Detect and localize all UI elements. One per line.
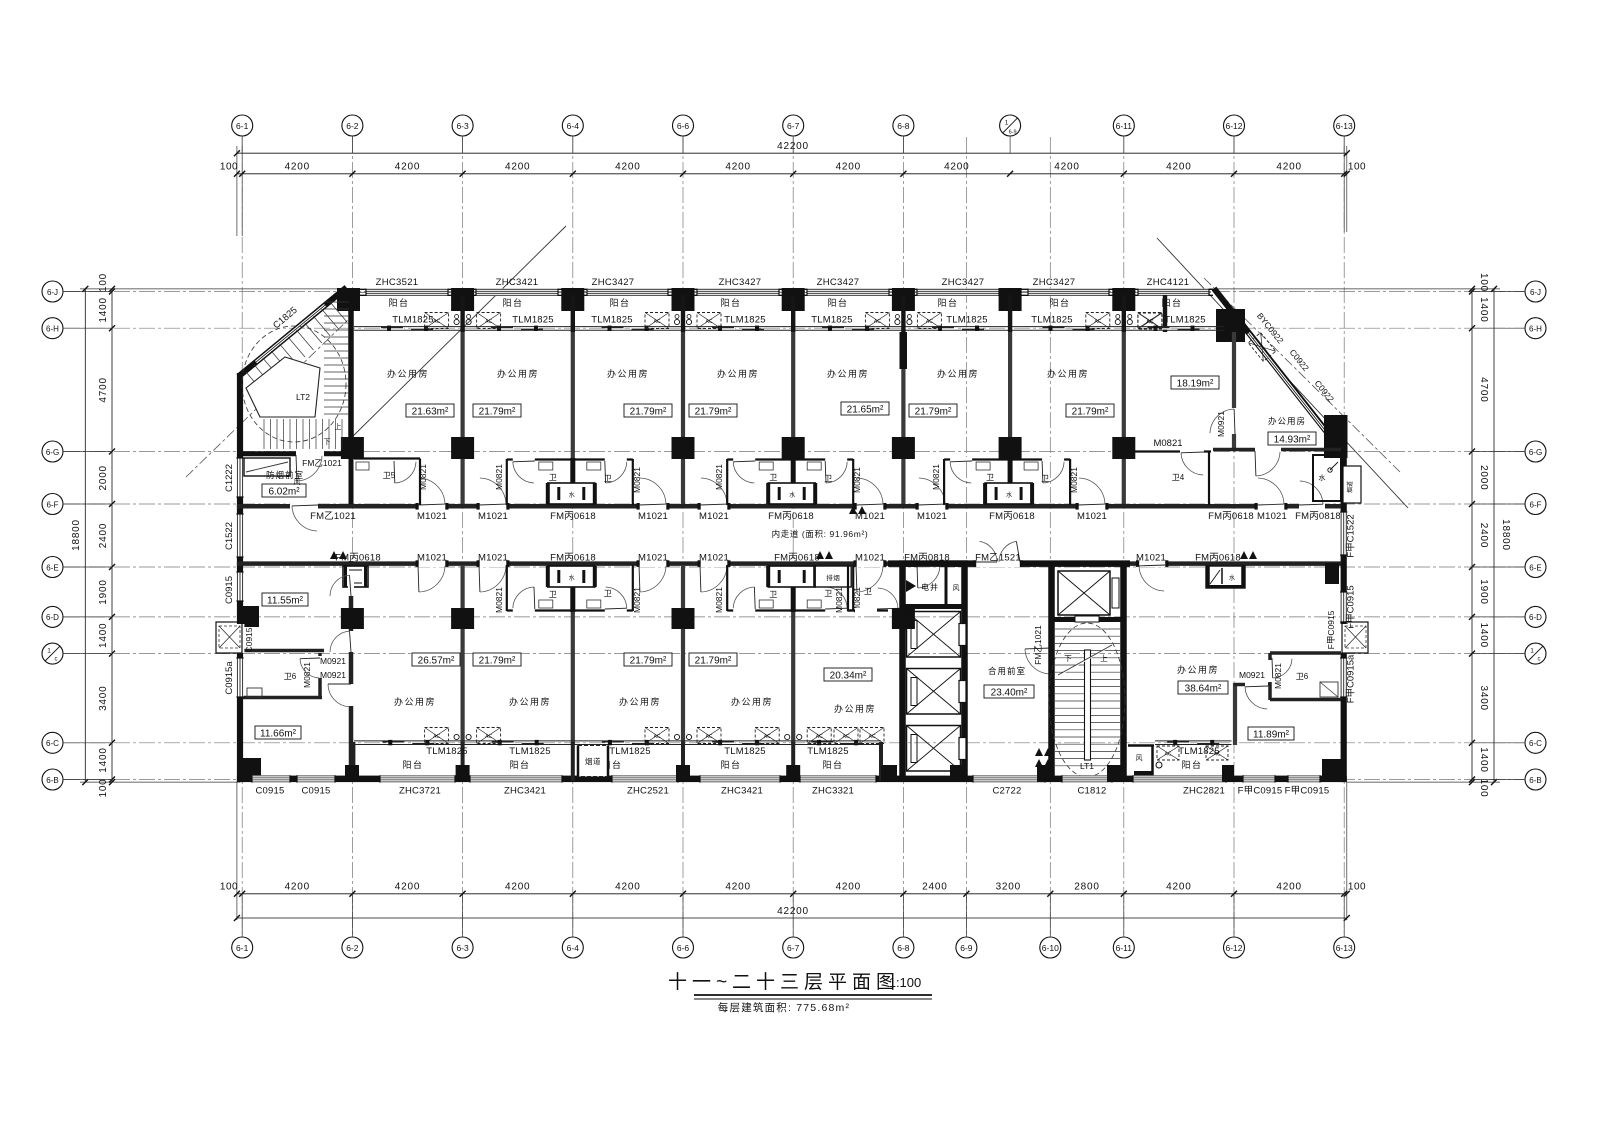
svg-text:阳台: 阳台 [937,297,958,308]
svg-text:阳台: 阳台 [388,297,409,308]
svg-text:6-H: 6-H [46,325,59,334]
svg-text:F甲C0915a: F甲C0915a [1346,654,1357,703]
svg-text:FM丙0618: FM丙0618 [550,553,596,564]
svg-text:上: 上 [1100,654,1108,663]
svg-text:C0915: C0915 [256,786,285,797]
svg-text:C0915: C0915 [224,576,235,604]
svg-text:AC: AC [764,734,771,740]
svg-text:1400: 1400 [98,747,109,772]
svg-text:ZHC3427: ZHC3427 [719,277,762,288]
svg-text:ZHC2821: ZHC2821 [1183,786,1225,797]
svg-text:AC: AC [926,319,933,325]
svg-text:1400: 1400 [1478,623,1489,648]
svg-text:6-7: 6-7 [787,943,800,953]
svg-text:6-J: 6-J [1530,288,1541,297]
svg-text:ZHC3421: ZHC3421 [721,786,763,797]
svg-text:21.79m²: 21.79m² [479,407,516,418]
svg-text:4200: 4200 [505,882,530,893]
svg-text:14.93m²: 14.93m² [1274,435,1311,446]
svg-text:办公用房: 办公用房 [1047,368,1089,379]
svg-text:办公用房: 办公用房 [717,368,759,379]
svg-text:卫: 卫 [986,473,994,482]
svg-text:办公用房: 办公用房 [1268,416,1306,426]
svg-text:6-1: 6-1 [236,121,249,131]
svg-text:M0921: M0921 [1239,670,1265,680]
svg-text:C2722: C2722 [993,786,1022,797]
svg-text:6.02m²: 6.02m² [268,487,300,498]
svg-text:卫: 卫 [549,590,557,599]
svg-text:6-6: 6-6 [677,121,690,131]
svg-text:AC: AC [706,319,713,325]
svg-text:办公用房: 办公用房 [509,696,551,707]
svg-text:办公用房: 办公用房 [619,696,661,707]
svg-text:6-8: 6-8 [897,943,910,953]
svg-text:TLM1825: TLM1825 [1031,315,1073,326]
svg-text:卫: 卫 [824,589,832,598]
svg-text:F甲C0915: F甲C0915 [1326,610,1336,649]
svg-text:21.79m²: 21.79m² [695,407,732,418]
svg-text:21.63m²: 21.63m² [412,407,449,418]
svg-text:卫: 卫 [824,474,832,483]
svg-text:6-9: 6-9 [960,943,973,953]
svg-text:4200: 4200 [615,162,640,173]
svg-text:M0821: M0821 [418,464,428,490]
svg-text:AC: AC [654,734,661,740]
svg-text:卫: 卫 [1041,474,1049,483]
svg-text:TLM1825: TLM1825 [591,315,633,326]
svg-text:阳台: 阳台 [822,759,843,770]
svg-text:3200: 3200 [996,882,1021,893]
svg-text:ZHC3427: ZHC3427 [817,277,860,288]
svg-text:LT1: LT1 [1080,761,1094,771]
svg-text:21.79m²: 21.79m² [630,407,667,418]
svg-text:阳台: 阳台 [502,297,523,308]
svg-text:M0821: M0821 [1273,663,1283,689]
svg-text:AC: AC [816,734,823,740]
svg-text:100: 100 [1478,273,1489,292]
svg-text:FM丙0618: FM丙0618 [774,553,820,564]
svg-text:阳台: 阳台 [509,759,530,770]
svg-text:4200: 4200 [395,162,420,173]
svg-text:M1021: M1021 [1077,511,1107,522]
svg-text:4200: 4200 [836,162,861,173]
svg-text:AC: AC [1094,319,1101,325]
svg-text:F甲C1522: F甲C1522 [1346,514,1357,557]
svg-text:1: 1 [1530,648,1534,655]
svg-text:6-B: 6-B [1529,776,1541,785]
svg-text:FM乙1521: FM乙1521 [975,553,1021,564]
svg-text:水: 水 [569,574,575,582]
svg-text:办公用房: 办公用房 [731,696,773,707]
svg-text:1400: 1400 [1478,747,1489,772]
svg-text:卫: 卫 [769,590,777,599]
svg-text:11.89m²: 11.89m² [1253,730,1290,741]
svg-text:6-12: 6-12 [1225,121,1242,131]
svg-text:M0821: M0821 [714,587,724,613]
svg-text:100: 100 [98,778,109,797]
svg-text:下: 下 [1064,654,1072,663]
svg-text:阳台: 阳台 [720,297,741,308]
svg-text:F甲C0915: F甲C0915 [1238,786,1283,797]
svg-text:6-13: 6-13 [1336,943,1353,953]
svg-text:6-F: 6-F [47,500,59,509]
svg-text:6-E: 6-E [46,563,58,572]
svg-text:ZHC2521: ZHC2521 [627,786,669,797]
svg-text:AC: AC [1147,320,1154,326]
svg-text:内走道 (面积: 91.96m²): 内走道 (面积: 91.96m²) [772,529,869,539]
svg-text:1400: 1400 [98,623,109,648]
svg-text:M0821: M0821 [494,464,504,490]
svg-text:21.79m²: 21.79m² [915,407,952,418]
svg-text:6-D: 6-D [46,613,59,622]
svg-text:C1222: C1222 [224,464,235,492]
svg-text:6-6: 6-6 [677,943,690,953]
svg-text:6-9: 6-9 [1009,130,1017,136]
svg-text:100: 100 [1478,778,1489,797]
svg-text:100: 100 [98,273,109,292]
svg-text:M0921: M0921 [1216,411,1226,437]
svg-text:TLM1825: TLM1825 [609,746,651,757]
svg-text:阳台: 阳台 [609,297,630,308]
svg-text:2400: 2400 [1478,523,1489,548]
svg-text:21.79m²: 21.79m² [630,656,667,667]
svg-text:C0915: C0915 [244,627,254,652]
svg-text:6-11: 6-11 [1116,943,1133,953]
svg-text:FM丙0618: FM丙0618 [989,511,1035,522]
svg-text:阳台: 阳台 [1161,297,1182,308]
svg-text:卫: 卫 [864,587,872,596]
svg-text:合用前室: 合用前室 [988,666,1026,676]
svg-text:M0821: M0821 [632,467,642,493]
svg-text:ZHC3427: ZHC3427 [1033,277,1076,288]
svg-text:4200: 4200 [505,162,530,173]
svg-text:FM丙0618: FM丙0618 [550,511,596,522]
svg-text:卫: 卫 [549,473,557,482]
svg-text:AC: AC [869,734,876,740]
svg-text:6-F: 6-F [1530,500,1542,509]
svg-text:100: 100 [220,882,238,893]
svg-text:6-11: 6-11 [1116,121,1133,131]
svg-text:卫5: 卫5 [383,471,396,480]
svg-text:4200: 4200 [1276,882,1301,893]
svg-text:6-H: 6-H [1529,325,1542,334]
svg-text:c: c [55,657,58,663]
svg-text:20.34m²: 20.34m² [830,671,867,682]
svg-text:风: 风 [953,584,960,592]
svg-text:LT2: LT2 [296,392,310,402]
svg-text:6-G: 6-G [46,448,59,457]
svg-text:100: 100 [220,162,238,173]
svg-text:M0821: M0821 [1069,467,1079,493]
svg-text:TLM1825: TLM1825 [1164,315,1206,326]
svg-text:阳台: 阳台 [1049,297,1070,308]
svg-text:6-C: 6-C [46,739,59,748]
svg-text:阳台: 阳台 [402,759,423,770]
svg-text:6-4: 6-4 [567,121,580,131]
svg-text:M0821: M0821 [714,464,724,490]
svg-text:M1021: M1021 [699,511,729,522]
svg-text:21.79m²: 21.79m² [1072,407,1109,418]
svg-text:4700: 4700 [1478,377,1489,402]
svg-text:办公用房: 办公用房 [387,368,429,379]
svg-text:6-12: 6-12 [1225,943,1242,953]
svg-text:4200: 4200 [1054,162,1079,173]
svg-text:M0821: M0821 [494,587,504,613]
svg-text:6-C: 6-C [1529,739,1542,748]
svg-text:18.19m²: 18.19m² [1177,379,1214,390]
svg-text:卫6: 卫6 [1296,672,1309,681]
svg-text:办公用房: 办公用房 [394,696,436,707]
svg-text:4200: 4200 [615,882,640,893]
svg-text:1: 1 [1005,120,1009,127]
svg-text:烟道: 烟道 [1346,481,1354,493]
svg-text:C0915a: C0915a [224,661,235,695]
svg-text:M0821: M0821 [852,467,862,493]
svg-text:办公用房: 办公用房 [1177,664,1219,675]
svg-text:水: 水 [1006,491,1012,499]
svg-text:ZHC3427: ZHC3427 [942,277,985,288]
svg-text:FM丙0618: FM丙0618 [1208,511,1254,522]
svg-text:AC: AC [1214,752,1221,758]
svg-text:卫: 卫 [604,474,612,483]
svg-text:6-2: 6-2 [346,943,359,953]
svg-text:TLM1825: TLM1825 [426,746,468,757]
svg-text:AC: AC [1165,752,1172,758]
svg-text:C1812: C1812 [1078,786,1107,797]
svg-text:阳台: 阳台 [1181,759,1202,770]
svg-text:TLM1825: TLM1825 [509,746,551,757]
svg-text:办公用房: 办公用房 [937,368,979,379]
svg-text:6-J: 6-J [47,288,58,297]
svg-text:4200: 4200 [285,882,310,893]
svg-text:FM乙1021: FM乙1021 [1033,625,1043,665]
svg-text:FM丙0618: FM丙0618 [768,511,814,522]
svg-text:M0821: M0821 [632,587,642,613]
svg-text:1400: 1400 [98,297,109,322]
svg-text:26.57m²: 26.57m² [418,656,455,667]
svg-text:6-B: 6-B [46,776,58,785]
svg-text:TLM1825: TLM1825 [724,746,766,757]
svg-text:21.79m²: 21.79m² [479,656,516,667]
svg-text:卫: 卫 [769,473,777,482]
svg-text:c: c [1538,657,1541,663]
svg-text:M1021: M1021 [478,553,508,564]
svg-text:风: 风 [1136,754,1143,762]
svg-text:M0821: M0821 [302,662,312,688]
svg-text:4200: 4200 [1166,162,1191,173]
svg-text:6-D: 6-D [1529,613,1542,622]
svg-text:AC: AC [433,319,440,325]
svg-text:M0821: M0821 [834,587,844,613]
svg-text:AC: AC [706,734,713,740]
svg-text:M0821: M0821 [931,464,941,490]
svg-text:ZHC3521: ZHC3521 [376,277,419,288]
svg-text:100: 100 [1348,162,1366,173]
svg-text:TLM1825: TLM1825 [392,315,434,326]
svg-text:2400: 2400 [922,882,947,893]
svg-text:AC: AC [843,734,850,740]
svg-text:水: 水 [1319,473,1326,482]
svg-text:FM丙0818: FM丙0818 [1295,511,1341,522]
svg-text:ZHC3321: ZHC3321 [812,786,854,797]
svg-text:F甲C0915: F甲C0915 [1285,786,1330,797]
svg-text:办公用房: 办公用房 [827,368,869,379]
svg-text:4200: 4200 [836,882,861,893]
svg-text:办公用房: 办公用房 [607,368,649,379]
svg-text:1: 1 [47,648,51,655]
svg-text:23.40m²: 23.40m² [991,688,1028,699]
svg-text:4200: 4200 [725,162,750,173]
svg-text:M1021: M1021 [1136,553,1166,564]
svg-text:18800: 18800 [71,519,82,551]
svg-text:6-1: 6-1 [236,943,249,953]
svg-text:办公用房: 办公用房 [497,368,539,379]
svg-text:2000: 2000 [98,465,109,490]
svg-text:办公用房: 办公用房 [834,703,876,714]
svg-text:6-4: 6-4 [567,943,580,953]
svg-text:M1021: M1021 [417,553,447,564]
svg-text:21.65m²: 21.65m² [847,405,884,416]
svg-text:电井: 电井 [921,582,939,592]
svg-text:M0821: M0821 [1153,438,1182,449]
svg-text:21.79m²: 21.79m² [695,656,732,667]
svg-text:6-2: 6-2 [346,121,359,131]
svg-text:2000: 2000 [1478,465,1489,490]
svg-text:卫6: 卫6 [284,672,297,681]
svg-text:水: 水 [789,491,795,499]
svg-text:C0915: C0915 [302,786,331,797]
svg-text:6-8: 6-8 [897,121,910,131]
svg-text:AC: AC [433,734,440,740]
svg-text:6-7: 6-7 [787,121,800,131]
svg-text:TLM1825: TLM1825 [512,315,554,326]
svg-text:2800: 2800 [1074,882,1099,893]
svg-text:3400: 3400 [98,685,109,710]
svg-text:38.64m²: 38.64m² [1185,684,1222,695]
svg-text:FM乙1021: FM乙1021 [302,458,342,468]
svg-text:1:100: 1:100 [889,975,922,990]
svg-text:1900: 1900 [1478,579,1489,604]
svg-text:卫: 卫 [604,589,612,598]
svg-text:下: 下 [324,438,331,446]
svg-text:1400: 1400 [1478,297,1489,322]
svg-text:6-G: 6-G [1529,448,1542,457]
svg-text:水: 水 [1229,574,1235,582]
svg-text:M0921: M0921 [320,656,346,666]
svg-text:4200: 4200 [395,882,420,893]
svg-text:6-3: 6-3 [456,121,469,131]
svg-text:AC: AC [654,319,661,325]
svg-text:AC: AC [485,734,492,740]
svg-text:ZHC3721: ZHC3721 [399,786,441,797]
svg-text:6-13: 6-13 [1336,121,1353,131]
svg-text:C1522: C1522 [224,522,235,550]
svg-text:4200: 4200 [725,882,750,893]
svg-text:M1021: M1021 [417,511,447,522]
svg-text:M0921: M0921 [320,670,346,680]
svg-text:6-3: 6-3 [456,943,469,953]
svg-text:TLM1825: TLM1825 [946,315,988,326]
svg-text:FM乙1021: FM乙1021 [310,511,356,522]
svg-text:AC: AC [874,319,881,325]
svg-text:阳台: 阳台 [720,759,741,770]
svg-text:排烟: 排烟 [826,573,840,582]
svg-text:M1021: M1021 [638,511,668,522]
svg-text:4700: 4700 [98,377,109,402]
svg-text:水: 水 [569,491,575,499]
svg-text:每层建筑面积: 775.68m²: 每层建筑面积: 775.68m² [718,1001,850,1014]
svg-text:M1021: M1021 [855,553,885,564]
svg-text:ZHC3427: ZHC3427 [592,277,635,288]
svg-text:AC: AC [485,319,492,325]
svg-text:4200: 4200 [285,162,310,173]
svg-text:11.55m²: 11.55m² [267,596,304,607]
svg-text:M1021: M1021 [699,553,729,564]
svg-text:TLM1825: TLM1825 [807,746,849,757]
svg-text:上: 上 [335,422,342,431]
svg-text:4200: 4200 [1166,882,1191,893]
svg-text:11.66m²: 11.66m² [260,729,297,740]
svg-text:阳台: 阳台 [827,297,848,308]
svg-text:ZHC3421: ZHC3421 [504,786,546,797]
svg-text:100: 100 [1348,882,1366,893]
svg-text:ZHC4121: ZHC4121 [1147,277,1190,288]
svg-text:18800: 18800 [1500,519,1511,551]
svg-text:M1021: M1021 [917,511,947,522]
svg-text:TLM1825: TLM1825 [811,315,853,326]
svg-text:M1021: M1021 [1257,511,1287,522]
svg-text:2400: 2400 [98,523,109,548]
svg-text:6-E: 6-E [1529,563,1541,572]
svg-text:十一~二十三层平面图: 十一~二十三层平面图 [668,971,900,993]
svg-text:M1021: M1021 [638,553,668,564]
svg-text:4200: 4200 [944,162,969,173]
svg-text:ZHC3421: ZHC3421 [496,277,539,288]
svg-text:6-10: 6-10 [1042,943,1059,953]
svg-text:4200: 4200 [1276,162,1301,173]
svg-text:3400: 3400 [1478,685,1489,710]
svg-text:烟道: 烟道 [585,756,601,766]
svg-text:1900: 1900 [98,579,109,604]
svg-text:FM丙0618: FM丙0618 [1195,553,1241,564]
svg-text:TLM1825: TLM1825 [724,315,766,326]
svg-text:M1021: M1021 [478,511,508,522]
svg-text:卫4: 卫4 [1172,473,1185,482]
